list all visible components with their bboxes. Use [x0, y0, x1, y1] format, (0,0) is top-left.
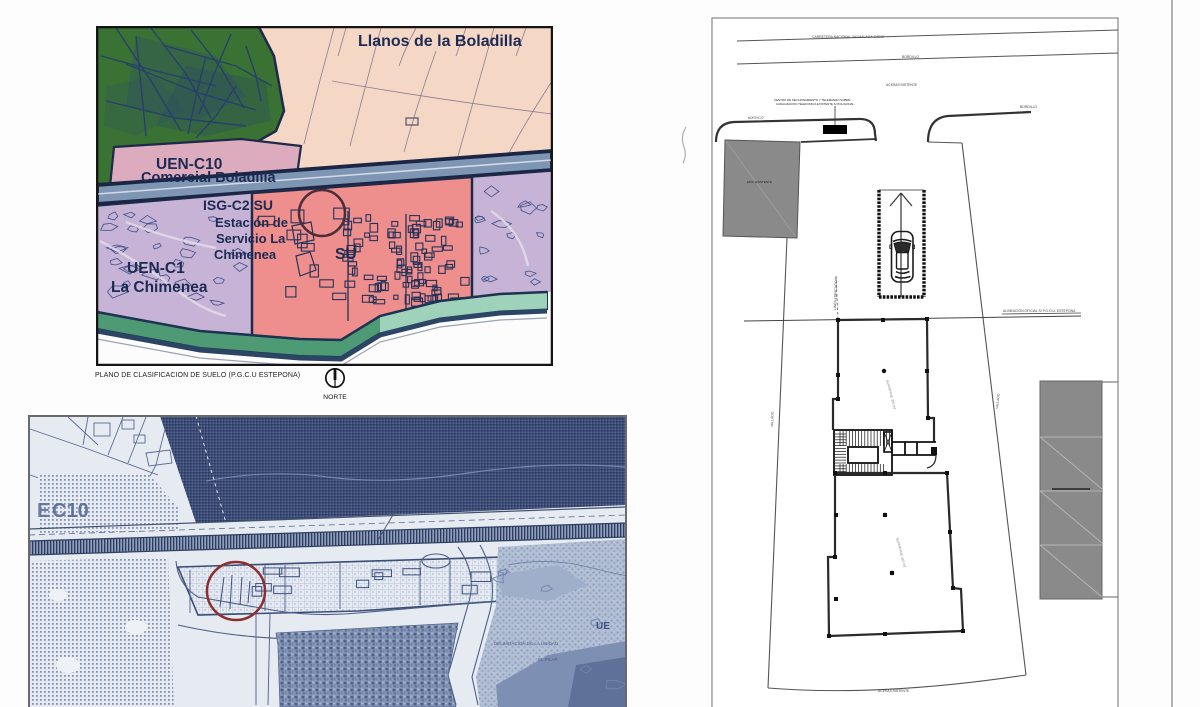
svg-text:ALINEACION OFICIAL S/ P.G.O.U.: ALINEACION OFICIAL S/ P.G.O.U. ESTEPONA — [1003, 309, 1076, 313]
svg-text:Servicio La: Servicio La — [216, 231, 286, 246]
svg-text:VALLADO: VALLADO — [770, 411, 775, 427]
svg-text:BORDILLO: BORDILLO — [902, 55, 920, 59]
svg-text:UEN-C1: UEN-C1 — [127, 260, 185, 277]
svg-text:BORDILLO: BORDILLO — [748, 115, 764, 120]
svg-text:Chimenea: Chimenea — [214, 247, 277, 262]
svg-text:SU: SU — [335, 246, 357, 263]
svg-text:E: E — [37, 500, 50, 522]
svg-text:NORTE: NORTE — [323, 394, 347, 401]
svg-text:EL PILAR: EL PILAR — [538, 657, 558, 662]
svg-text:Estación de: Estación de — [215, 215, 288, 230]
svg-text:DELIMITACION DE LA UNIDAD: DELIMITACION DE LA UNIDAD — [494, 641, 559, 646]
svg-text:BORDILLO: BORDILLO — [1020, 105, 1038, 109]
svg-text:CANALIZACION TELEFONICA EXISTE: CANALIZACION TELEFONICA EXISTENTE S/ POL… — [776, 102, 854, 106]
svg-text:Llanos de la Boladilla: Llanos de la Boladilla — [358, 33, 522, 50]
svg-text:CARRETERA NACIONAL 340 MALAGA-: CARRETERA NACIONAL 340 MALAGA-CADIZ — [812, 35, 884, 39]
svg-text:ISG-C2 SU: ISG-C2 SU — [203, 197, 273, 213]
svg-text:ACERA EXISTENTE: ACERA EXISTENTE — [886, 83, 918, 87]
svg-text:UE: UE — [596, 621, 610, 632]
svg-text:EDIF. EXISTENTE: EDIF. EXISTENTE — [747, 180, 772, 184]
svg-text:ACERA EXISTENTE: ACERA EXISTENTE — [878, 689, 910, 693]
svg-text:La Chimenea: La Chimenea — [111, 279, 208, 296]
svg-text:Comercial Boladilla: Comercial Boladilla — [141, 170, 277, 186]
svg-text:C10: C10 — [52, 500, 89, 522]
